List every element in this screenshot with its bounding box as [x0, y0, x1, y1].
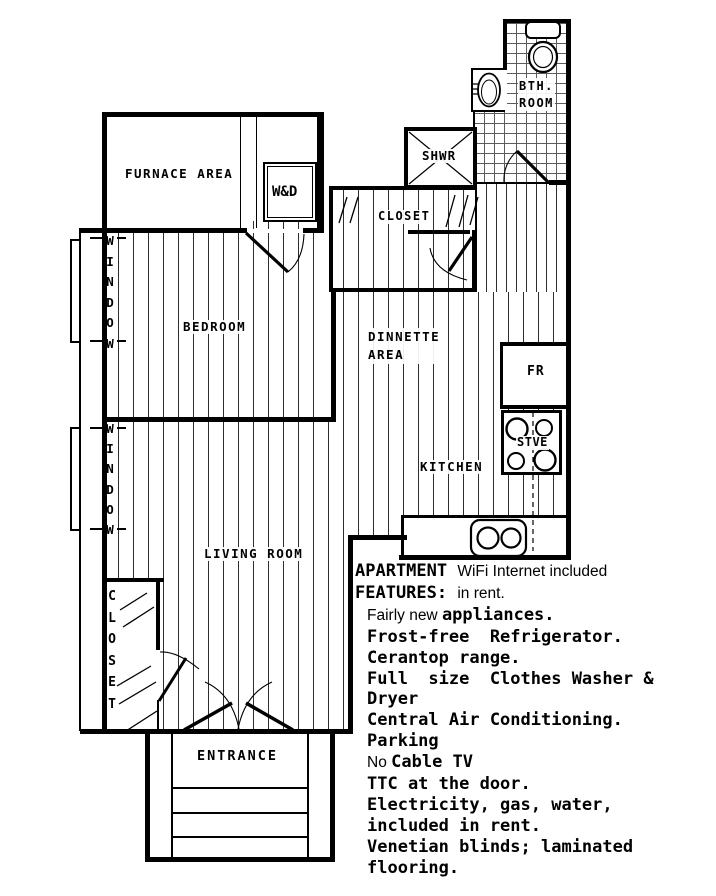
feature-segment: APARTMENT: [355, 561, 457, 581]
wall: [156, 578, 160, 650]
feature-line: No Cable TV: [355, 752, 715, 774]
wall: [70, 239, 81, 241]
wall: [90, 340, 104, 342]
wall: [471, 110, 505, 112]
wall: [90, 427, 104, 429]
floor-plan: FURNACE AREA W&D BEDROOM CLOSET DINNETTE…: [0, 0, 716, 896]
wall: [475, 186, 477, 232]
feature-segment: flooring.: [367, 858, 459, 878]
feature-segment: No: [367, 754, 391, 771]
wall: [79, 228, 81, 731]
wall: [317, 112, 324, 233]
wall: [102, 112, 107, 734]
feature-segment: Cable TV: [391, 752, 473, 772]
wall: [90, 528, 104, 530]
wall: [350, 535, 407, 540]
wall: [102, 417, 336, 422]
wall: [145, 729, 150, 862]
wall: [471, 68, 473, 112]
wall: [503, 19, 571, 23]
feature-segment: FEATURES:: [355, 583, 457, 603]
feature-segment: Venetian blinds; laminated: [367, 837, 633, 857]
hall-closet-floor: [333, 190, 472, 288]
feature-line: Central Air Conditioning.: [355, 710, 715, 731]
wall: [566, 19, 571, 560]
wd-label: W&D: [271, 184, 298, 200]
feature-segment: in rent.: [457, 585, 504, 602]
wall: [70, 427, 81, 429]
feature-line: Frost-free Refrigerator.: [355, 627, 715, 648]
wall: [117, 427, 126, 429]
wall: [145, 857, 335, 862]
feature-line: TTC at the door.: [355, 774, 715, 795]
bedroom-label: BEDROOM: [182, 320, 247, 334]
feature-segment: Parking: [367, 731, 439, 751]
wall: [348, 535, 353, 734]
wall: [70, 529, 81, 531]
dinnette-label: DINNETTE AREA: [367, 328, 441, 364]
wall: [473, 110, 475, 129]
living-room-label: LIVING ROOM: [203, 547, 304, 561]
wall: [173, 787, 307, 789]
wall: [117, 237, 126, 239]
stove-label: STVE: [516, 436, 549, 450]
wall: [256, 117, 257, 228]
apartment-features-text: APARTMENT WiFi Internet includedFEATURES…: [355, 561, 715, 879]
wall: [240, 117, 241, 228]
wall: [331, 288, 336, 422]
wall: [70, 341, 81, 343]
closet-top-label: CLOSET: [377, 210, 431, 224]
feature-segment: WiFi Internet included: [457, 563, 607, 580]
corridor-floor: [477, 184, 566, 292]
feature-line: FEATURES: in rent.: [355, 583, 715, 605]
wall: [70, 240, 72, 343]
feature-line: Cerantop range.: [355, 648, 715, 669]
feature-segment: Dryer: [367, 689, 418, 709]
feature-line: Full size Clothes Washer &: [355, 669, 715, 690]
feature-line: Venetian blinds; laminated: [355, 837, 715, 858]
feature-segment: Cerantop range.: [367, 648, 521, 668]
wall: [117, 340, 126, 342]
wall: [399, 555, 571, 560]
wall: [330, 729, 335, 862]
wall: [102, 112, 324, 117]
wall: [477, 182, 567, 184]
feature-line: flooring.: [355, 858, 715, 879]
wall: [117, 528, 126, 530]
furnace-area-label: FURNACE AREA: [124, 167, 234, 181]
wall: [173, 836, 307, 838]
wall: [307, 733, 309, 857]
wall: [157, 700, 159, 733]
living-closet-label: CLOSET: [106, 586, 118, 716]
wall: [171, 733, 173, 857]
wall: [102, 578, 164, 582]
feature-segment: Central Air Conditioning.: [367, 710, 623, 730]
feature-segment: appliances.: [442, 605, 555, 625]
wall: [90, 237, 104, 239]
feature-line: Electricity, gas, water,: [355, 795, 715, 816]
feature-line: Parking: [355, 731, 715, 752]
wall: [503, 19, 507, 70]
feature-line: Dryer: [355, 689, 715, 710]
wall: [329, 186, 333, 292]
feature-line: Fairly new appliances.: [355, 605, 715, 627]
fridge-label: FR: [526, 365, 546, 380]
feature-line: included in rent.: [355, 816, 715, 837]
wall: [329, 288, 477, 292]
wall: [471, 68, 505, 70]
wall: [70, 428, 72, 531]
feature-line: APARTMENT WiFi Internet included: [355, 561, 715, 583]
entrance-label: ENTRANCE: [196, 749, 279, 765]
wall: [80, 729, 353, 734]
feature-segment: Electricity, gas, water,: [367, 795, 613, 815]
bathroom-tiles-lower: [475, 112, 507, 183]
wall: [329, 186, 477, 190]
bath-sink-icon: [473, 74, 500, 107]
feature-segment: Full size Clothes Washer &: [367, 669, 654, 689]
wall: [173, 812, 307, 814]
feature-segment: Fairly new: [367, 607, 442, 624]
wall: [472, 230, 477, 292]
kitchen-counter: [401, 515, 567, 560]
wall: [408, 230, 470, 234]
feature-segment: included in rent.: [367, 816, 541, 836]
kitchen-label: KITCHEN: [419, 460, 484, 474]
bathroom-label: BTH. ROOM: [518, 78, 555, 111]
feature-segment: Frost-free Refrigerator.: [367, 627, 623, 647]
feature-segment: TTC at the door.: [367, 774, 531, 794]
shower-label: SHWR: [421, 149, 457, 163]
